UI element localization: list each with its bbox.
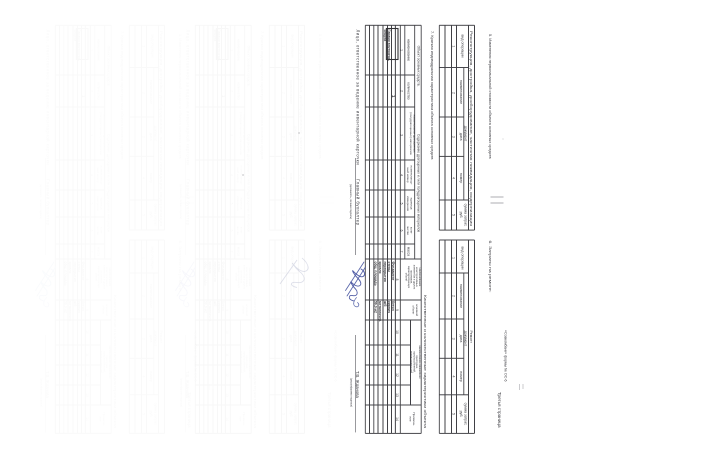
svg-text:(должность, личная подпись): (должность, личная подпись) xyxy=(349,184,353,219)
svg-text:объект: объект xyxy=(412,306,416,316)
svg-text:руб.: руб. xyxy=(459,411,463,418)
svg-text:11: 11 xyxy=(395,353,399,357)
svg-text:дата: дата xyxy=(459,335,463,343)
svg-text:56,0 м2: 56,0 м2 xyxy=(374,301,378,313)
svg-text:ный номер: ный номер xyxy=(406,167,410,182)
svg-text:принадлежностей: принадлежностей xyxy=(410,351,414,374)
svg-text:номер: номер xyxy=(459,371,463,381)
svg-text:6: 6 xyxy=(400,230,404,232)
svg-text:5: 5 xyxy=(451,413,455,415)
svg-text:14: 14 xyxy=(395,417,399,421)
svg-text:2: 2 xyxy=(400,90,404,92)
svg-text:1: 1 xyxy=(451,257,455,259)
svg-text:чество: чество xyxy=(406,226,410,236)
svg-text:перекрытия: перекрытия xyxy=(383,262,387,282)
svg-text:Лицо, ответственное за ведение: Лицо, ответственное за ведение инвентарн… xyxy=(355,30,360,166)
svg-text:10: 10 xyxy=(395,330,399,334)
svg-text:4: 4 xyxy=(451,177,455,179)
svg-text:Качественные и количественные: Качественные и количественные характерис… xyxy=(423,295,427,428)
svg-text:кровля: кровля xyxy=(378,262,382,274)
svg-text:общ. площадь: общ. площадь xyxy=(374,262,378,286)
svg-text:7: 7 xyxy=(400,251,404,253)
svg-text:вид операции: вид операции xyxy=(461,246,465,269)
svg-text:1: 1 xyxy=(451,45,455,47)
svg-text:наименование: наименование xyxy=(459,80,463,104)
svg-text:(расшифровка подписи): (расшифровка подписи) xyxy=(350,378,354,407)
svg-text:3: 3 xyxy=(400,134,404,136)
svg-text:спорта: спорта xyxy=(383,30,387,42)
svg-text:Ремонт: Ремонт xyxy=(469,331,473,344)
svg-text:(полудрагоценных) материалов: (полудрагоценных) материалов xyxy=(409,112,413,155)
svg-text:ж/б: ж/б xyxy=(383,300,387,306)
svg-text:руб.: руб. xyxy=(459,212,463,219)
svg-text:2: 2 xyxy=(451,92,455,94)
svg-text:6. Затраты на ремонт:: 6. Затраты на ремонт: xyxy=(488,241,493,293)
svg-text:ние: ние xyxy=(409,416,413,421)
svg-text:металлочер.: металлочер. xyxy=(378,301,382,322)
svg-text:13: 13 xyxy=(395,393,399,397)
svg-text:Т.В. Жданова: Т.В. Жданова xyxy=(355,371,360,398)
svg-text:12: 12 xyxy=(395,373,399,377)
svg-text:«Совкомбанк» формы № ОС-6: «Совкомбанк» формы № ОС-6 xyxy=(504,330,508,382)
svg-text:Реконструкция, достройка, дооб: Реконструкция, достройка, дооборудование… xyxy=(469,31,473,226)
svg-text:5: 5 xyxy=(451,214,455,216)
svg-text:5. Изменения первоначальной ст: 5. Изменения первоначальной стоимости об… xyxy=(488,34,493,159)
svg-text:5: 5 xyxy=(400,203,404,205)
svg-text:объект: объект xyxy=(404,273,408,282)
svg-text:Объект основных средств,: Объект основных средств, xyxy=(417,46,421,87)
svg-text:Главный бухгалтер: Главный бухгалтер xyxy=(355,179,360,226)
svg-text:Третья страница: Третья страница xyxy=(497,392,502,428)
svg-text:4: 4 xyxy=(451,376,455,378)
svg-text:масса: масса xyxy=(406,247,410,256)
svg-text:наименование: наименование xyxy=(406,39,410,61)
svg-text:3: 3 xyxy=(451,136,455,138)
svg-text:2: 2 xyxy=(451,295,455,297)
svg-text:вид операции: вид операции xyxy=(461,34,465,57)
svg-text:3: 3 xyxy=(451,338,455,340)
svg-text:измерения: измерения xyxy=(406,196,410,211)
svg-text:наименование: наименование xyxy=(459,284,463,308)
svg-text:номер: номер xyxy=(459,173,463,183)
svg-text:1: 1 xyxy=(400,49,404,51)
svg-text:7. Краткая индивидуальная хара: 7. Краткая индивидуальная характеристика… xyxy=(430,31,435,160)
svg-text:дата: дата xyxy=(459,133,463,141)
svg-text:4: 4 xyxy=(400,174,404,176)
svg-text:количество: количество xyxy=(406,82,410,99)
